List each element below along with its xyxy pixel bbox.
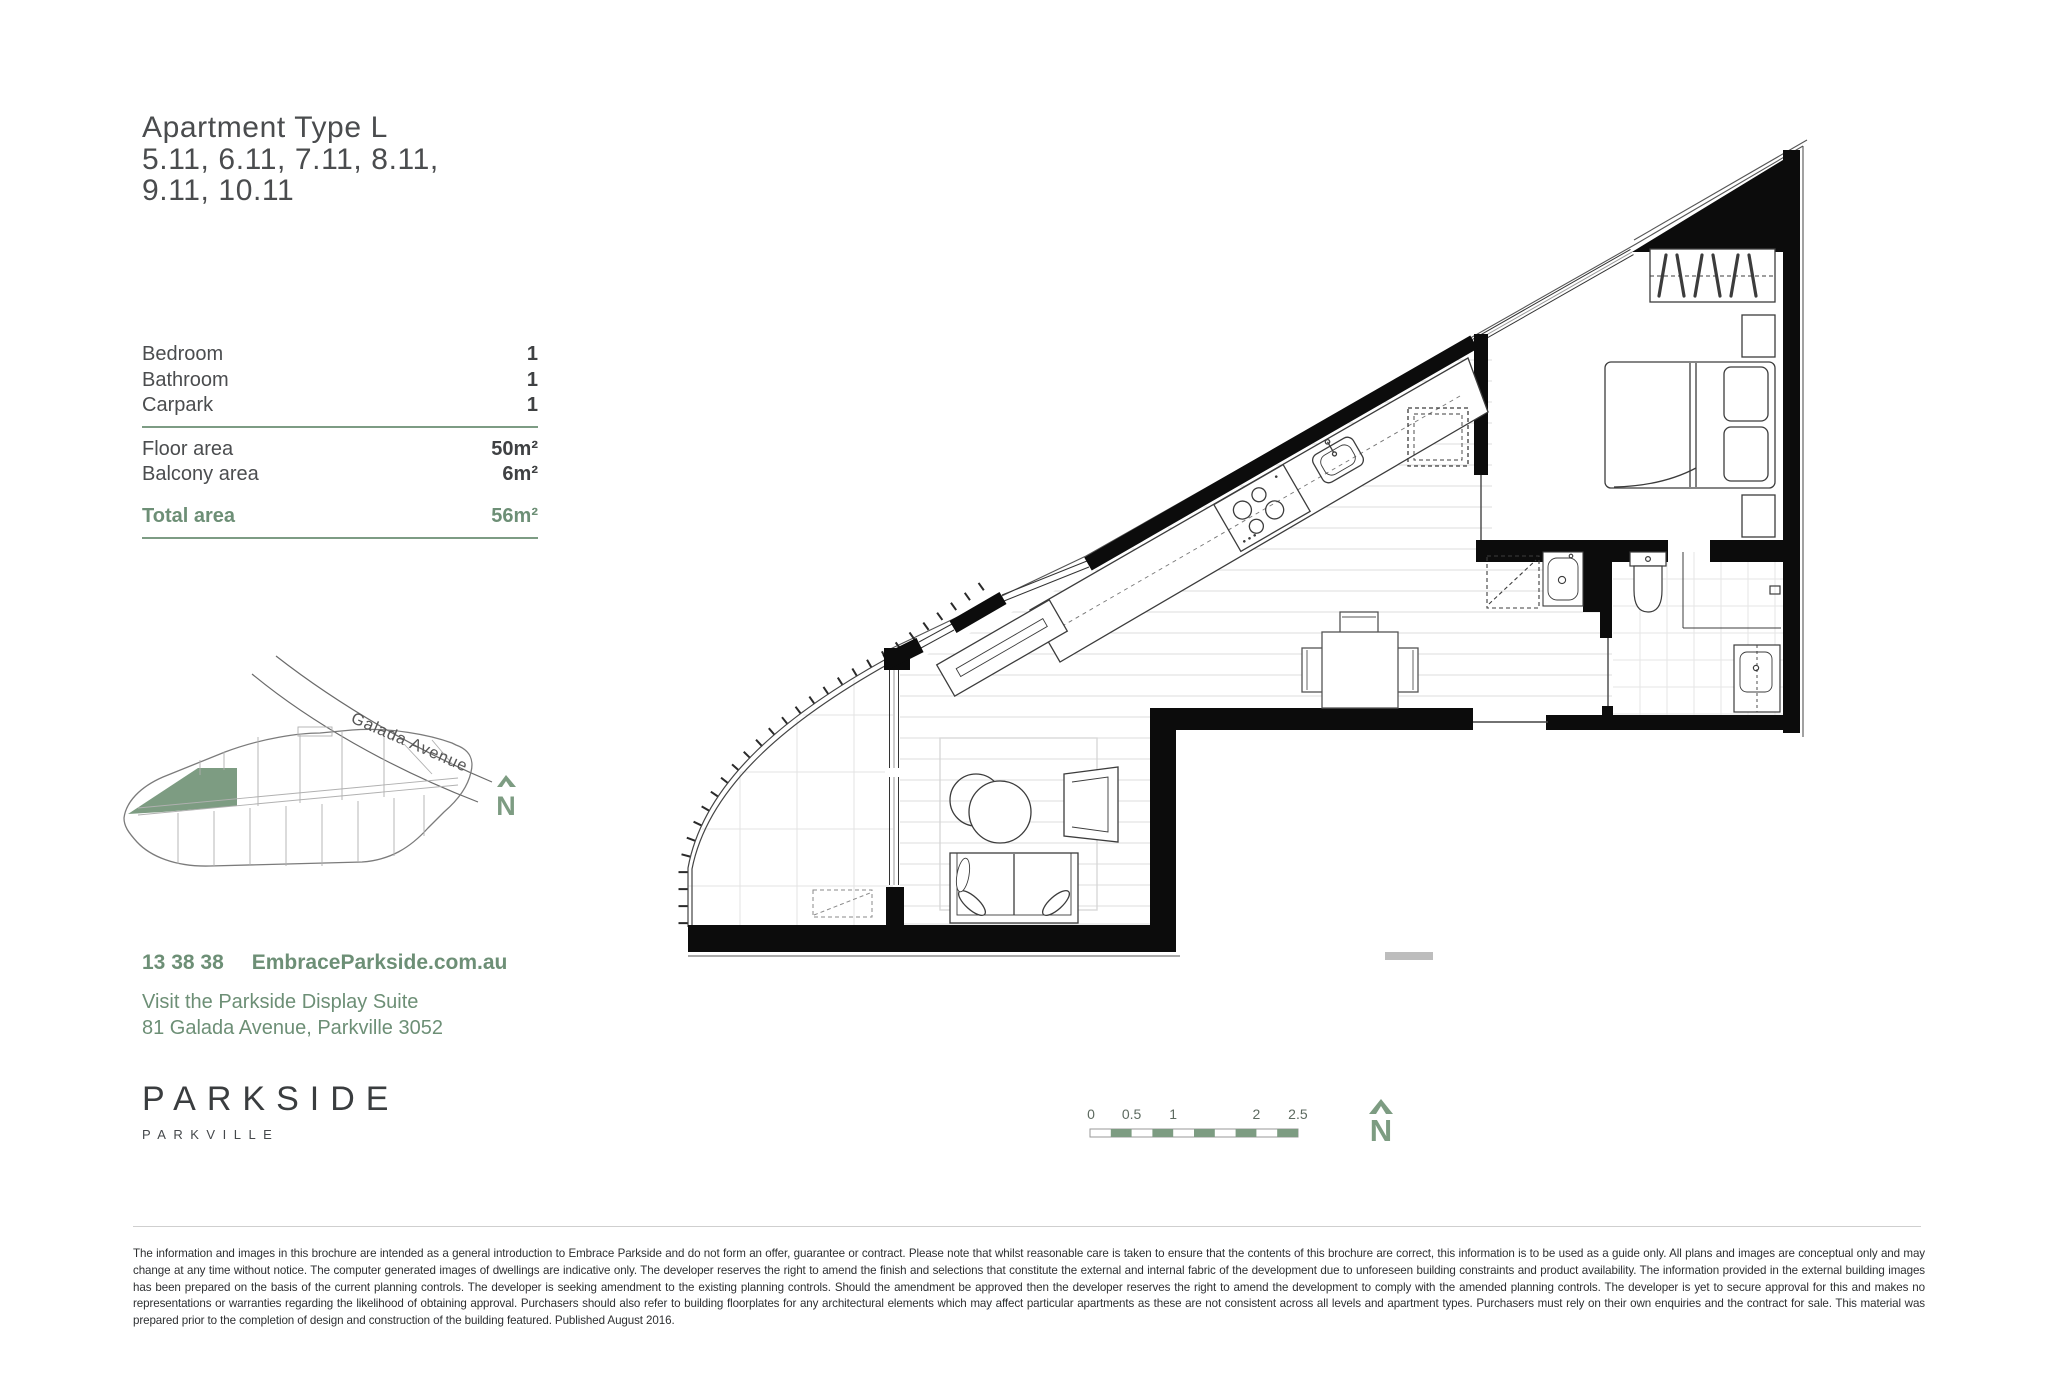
visit-line1: Visit the Parkside Display Suite — [142, 989, 622, 1015]
table-row: Bedroom 1 — [142, 342, 538, 368]
balcony-tiles — [680, 650, 900, 930]
brand-logo: PARKSIDE PARKVILLE — [142, 1080, 399, 1142]
diagonal-walls — [886, 342, 1474, 662]
total-area-row: Total area 56m² — [142, 505, 538, 528]
scale-label: 1 — [1169, 1106, 1177, 1122]
spec-label: Carpark — [142, 393, 213, 419]
spec-label: Bathroom — [142, 368, 229, 394]
dining-chair — [1397, 648, 1418, 692]
street-label: Galada Avenue — [348, 709, 470, 776]
website-link[interactable]: EmbraceParkside.com.au — [252, 951, 508, 974]
logo-brand-text: PARKSIDE — [142, 1080, 399, 1119]
scale-bar: 0 0.5 1 2 2.5 — [1087, 1106, 1308, 1137]
armchair — [1064, 767, 1118, 842]
spec-value: 1 — [527, 368, 538, 394]
logo-suburb-text: PARKVILLE — [142, 1127, 399, 1142]
apartment-type-title: Apartment Type L — [142, 112, 662, 144]
kitchen — [1030, 358, 1488, 662]
unit-numbers-line2: 9.11, 10.11 — [142, 175, 662, 207]
dining-chair — [1302, 648, 1323, 692]
unit-numbers-line1: 5.11, 6.11, 7.11, 8.11, — [142, 144, 662, 176]
dining-chair — [1340, 612, 1378, 633]
spec-table: Bedroom 1 Bathroom 1 Carpark 1 Floor are… — [142, 342, 538, 548]
phone-number: 13 38 38 — [142, 951, 224, 974]
bedside-table — [1742, 315, 1775, 357]
wall-stub — [1385, 952, 1433, 960]
total-label: Total area — [142, 505, 235, 528]
dining-table — [1322, 632, 1398, 708]
pillow — [1724, 427, 1768, 481]
table-row: Floor area 50m² — [142, 437, 538, 463]
pillow — [1724, 367, 1768, 421]
site-map-north-arrow-icon: N — [496, 775, 516, 821]
footer-divider — [133, 1226, 1921, 1227]
contact-block: 13 38 38EmbraceParkside.com.au Visit the… — [142, 951, 622, 1041]
laundry-trough — [1543, 552, 1583, 606]
site-map-north-label: N — [496, 791, 516, 821]
round-chair — [969, 781, 1031, 843]
kitchen-bench — [1030, 358, 1488, 662]
scale-label: 0.5 — [1122, 1106, 1142, 1122]
bathroom — [1630, 552, 1781, 712]
table-row: Bathroom 1 — [142, 368, 538, 394]
scale-label: 0 — [1087, 1106, 1095, 1122]
balcony-balustrade — [683, 586, 982, 930]
spec-value: 1 — [527, 342, 538, 368]
table-row: Balcony area 6m² — [142, 462, 538, 488]
bedside-table — [1742, 495, 1775, 537]
spec-label: Floor area — [142, 437, 233, 463]
site-map: Galada Avenue N — [124, 656, 516, 866]
north-arrow-icon: N — [1369, 1099, 1393, 1148]
sideboard — [937, 600, 1068, 696]
spec-value: 1 — [527, 393, 538, 419]
divider — [142, 537, 538, 539]
toilet-cistern — [1630, 552, 1666, 566]
page-title: Apartment Type L 5.11, 6.11, 7.11, 8.11,… — [142, 112, 662, 207]
living-furniture — [950, 767, 1118, 923]
contact-line: 13 38 38EmbraceParkside.com.au — [142, 951, 622, 975]
floor-plan-drawing: N 0 0.5 1 2 2.5 — [0, 0, 2048, 1384]
bedroom-furniture — [1605, 249, 1775, 537]
apartment-plan: N 0 0.5 1 2 2.5 — [680, 140, 1807, 1148]
spec-value: 50m² — [491, 437, 538, 463]
north-label: N — [1370, 1113, 1392, 1148]
scale-label: 2 — [1253, 1106, 1261, 1122]
balcony-sliding-door — [885, 662, 899, 885]
divider — [142, 426, 538, 428]
spec-label: Balcony area — [142, 462, 259, 488]
disclaimer-text: The information and images in this broch… — [133, 1246, 1925, 1330]
toilet — [1634, 566, 1662, 612]
spec-value: 6m² — [502, 462, 538, 488]
spec-label: Bedroom — [142, 342, 223, 368]
balcony-ac-unit — [813, 890, 872, 917]
dining-set — [1302, 612, 1418, 708]
visit-line2: 81 Galada Avenue, Parkville 3052 — [142, 1015, 622, 1041]
total-value: 56m² — [491, 505, 538, 528]
table-row: Carpark 1 — [142, 393, 538, 419]
scale-label: 2.5 — [1288, 1106, 1308, 1122]
